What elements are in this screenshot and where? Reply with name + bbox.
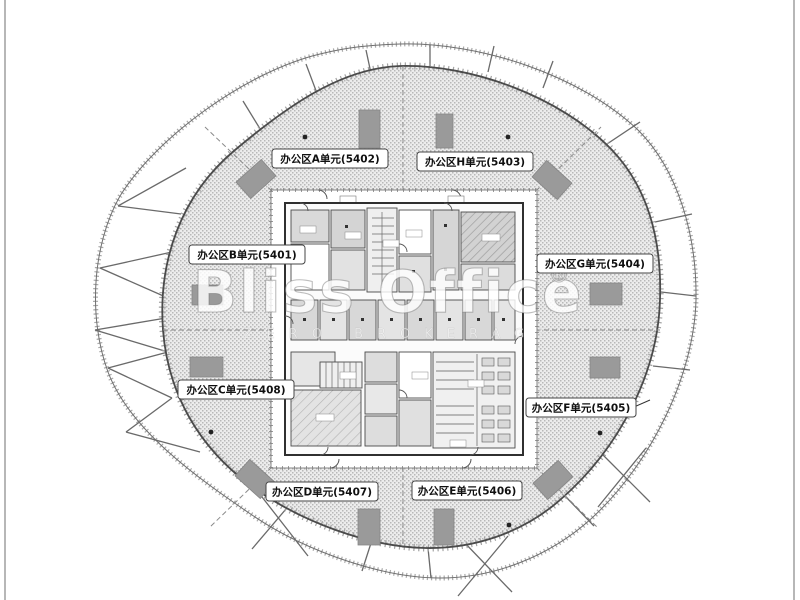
unit-label-f: 办公区F单元(5405) [526, 398, 650, 417]
svg-text:办公区F单元(5405): 办公区F单元(5405) [532, 402, 631, 415]
svg-text:办公区C单元(5408): 办公区C单元(5408) [186, 384, 285, 397]
watermark: Bliss Office ® ZERO BROKERAGE [193, 258, 584, 342]
svg-text:办公区A单元(5402): 办公区A单元(5402) [280, 153, 379, 166]
unit-label-g: 办公区G单元(5404) [537, 254, 653, 273]
unit-label-e: 办公区E单元(5406) [412, 481, 522, 500]
svg-text:办公区B单元(5401): 办公区B单元(5401) [197, 249, 296, 262]
svg-text:办公区G单元(5404): 办公区G单元(5404) [545, 258, 645, 271]
unit-label-h: 办公区H单元(5403) [417, 152, 533, 171]
floor-plan-image: Bliss Office ® ZERO BROKERAGE 办公区A单元(540… [0, 0, 800, 600]
unit-label-b: 办公区B单元(5401) [189, 245, 305, 264]
watermark-title: Bliss Office [193, 258, 584, 326]
watermark-tagline: ZERO BROKERAGE [244, 327, 561, 342]
svg-text:办公区H单元(5403): 办公区H单元(5403) [425, 156, 525, 169]
unit-label-a: 办公区A单元(5402) [272, 149, 388, 168]
unit-label-d: 办公区D单元(5407) [266, 482, 378, 501]
floor-plan-svg: Bliss Office ® ZERO BROKERAGE 办公区A单元(540… [0, 0, 800, 600]
svg-text:办公区D单元(5407): 办公区D单元(5407) [272, 486, 372, 499]
unit-label-c: 办公区C单元(5408) [178, 380, 294, 399]
svg-text:办公区E单元(5406): 办公区E单元(5406) [418, 485, 517, 498]
